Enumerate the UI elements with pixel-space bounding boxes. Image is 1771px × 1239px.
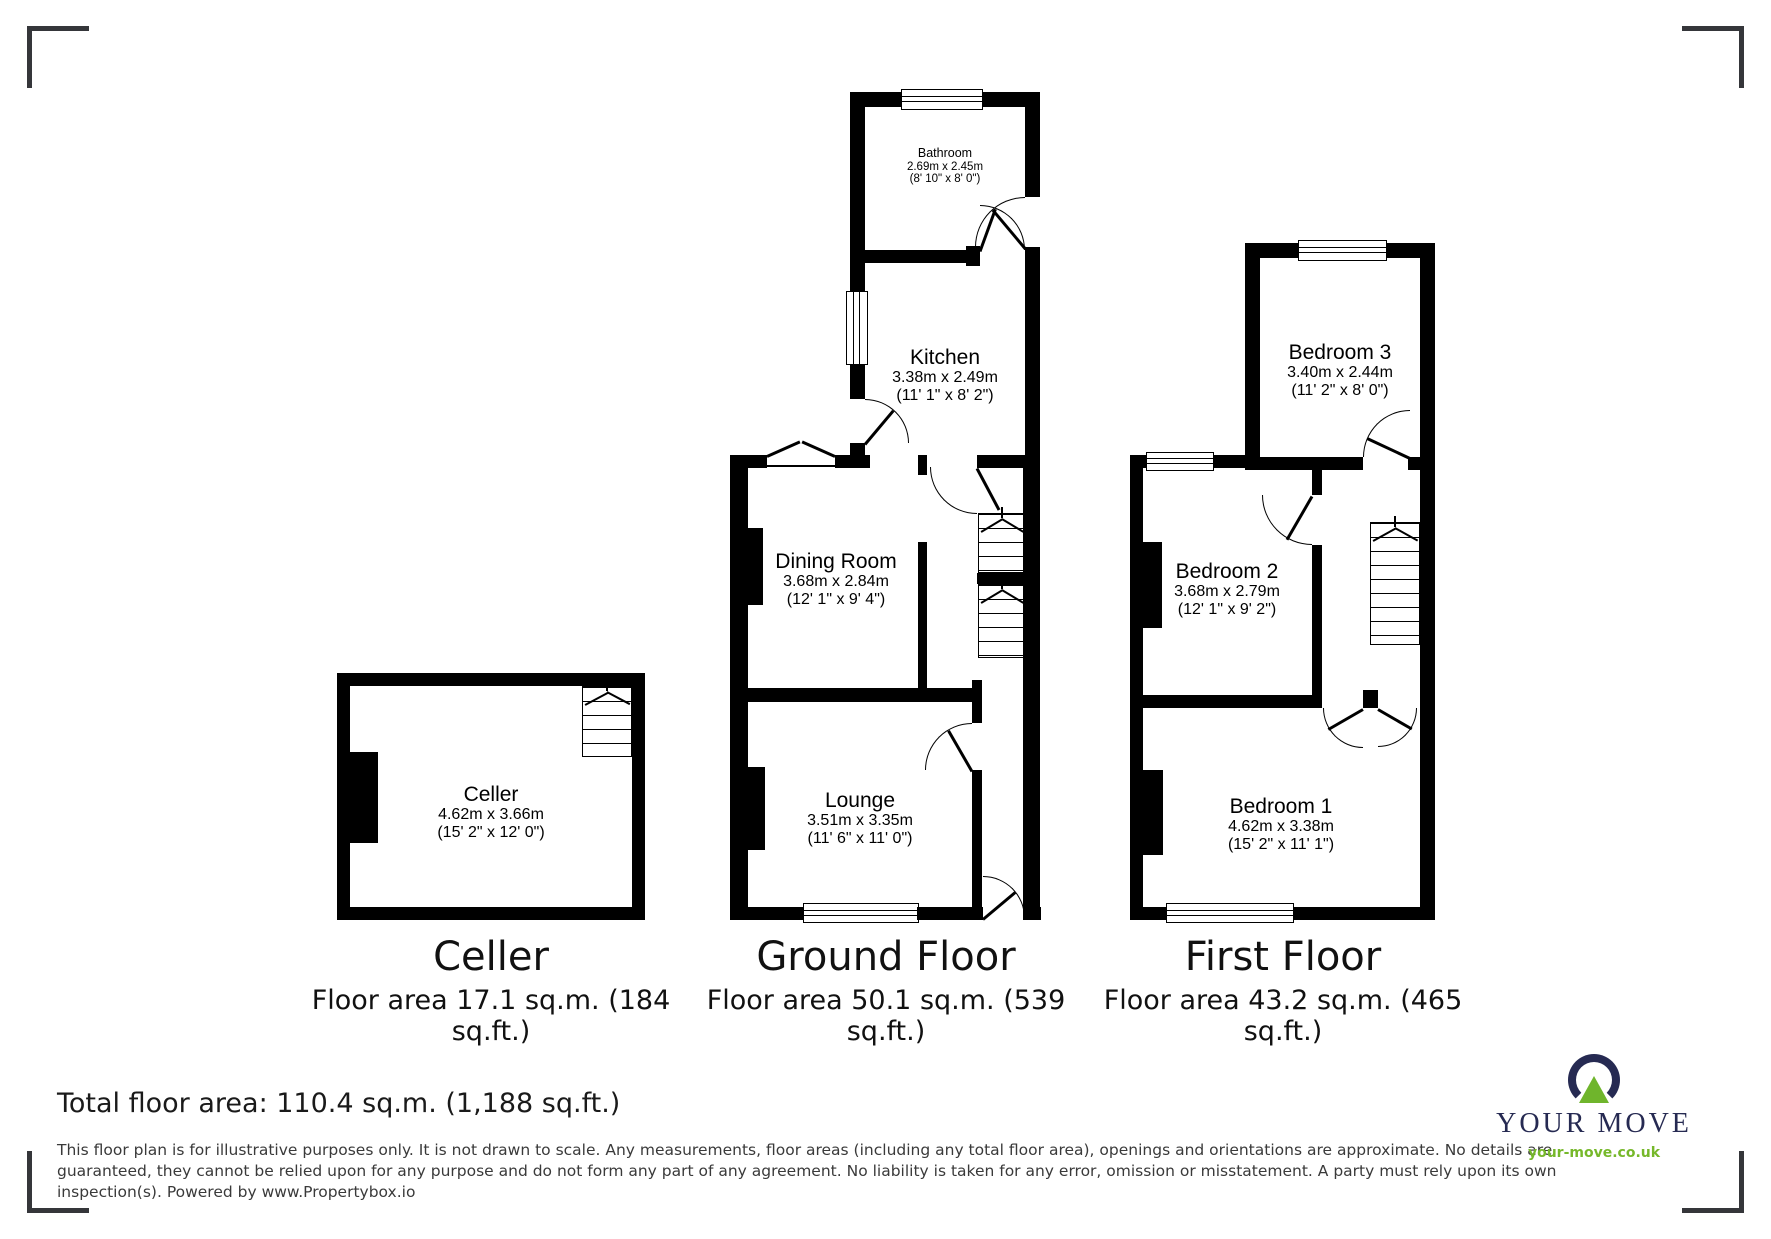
floor-label-first: First Floor Floor area 43.2 sq.m. (465 s…	[1083, 934, 1483, 1047]
bedroom1-window	[1166, 903, 1294, 923]
room-size-imperial: (12' 1" x 9' 2")	[1127, 601, 1327, 619]
wall	[337, 907, 645, 920]
logo-brand-text: YOUR MOVE	[1464, 1108, 1724, 1140]
bathroom-window	[901, 89, 983, 110]
room-size-metric: 3.68m x 2.79m	[1127, 583, 1327, 601]
wall	[972, 770, 982, 907]
room-size-metric: 3.51m x 3.35m	[760, 812, 960, 830]
room-label-lounge: Lounge 3.51m x 3.35m (11' 6" x 11' 0")	[760, 790, 960, 848]
room-label-cellar: Celler 4.62m x 3.66m (15' 2" x 12' 0")	[391, 784, 591, 842]
door-arc	[930, 467, 977, 514]
room-name: Celler	[391, 784, 591, 806]
wall	[972, 680, 982, 723]
room-label-dining: Dining Room 3.68m x 2.84m (12' 1" x 9' 4…	[736, 551, 936, 609]
corner-mark-bottom-left	[27, 1151, 32, 1213]
wall	[1408, 457, 1420, 470]
corner-mark-top-left	[27, 26, 89, 31]
corner-mark-top-left	[27, 26, 32, 88]
stairs-down-cellar	[978, 584, 1025, 658]
room-size-imperial: (8' 10" x 8' 0")	[845, 173, 1045, 185]
stairs-first-floor	[1370, 522, 1420, 645]
cellar-stairs	[582, 686, 632, 757]
floor-area-line2: sq.ft.)	[686, 1016, 1086, 1047]
room-name: Bedroom 2	[1127, 561, 1327, 583]
corner-mark-bottom-right	[1682, 1208, 1744, 1213]
wall	[850, 92, 865, 293]
french-door-leaf	[766, 440, 800, 457]
wall	[1363, 690, 1378, 708]
room-name: Kitchen	[845, 347, 1045, 369]
wall	[748, 688, 973, 702]
disclaimer-line2: guaranteed, they cannot be relied upon f…	[57, 1162, 1556, 1180]
room-size-metric: 4.62m x 3.66m	[391, 806, 591, 824]
wall	[337, 673, 350, 920]
room-name: Bedroom 3	[1240, 342, 1440, 364]
corner-mark-top-right	[1739, 26, 1744, 88]
room-size-metric: 2.69m x 2.45m	[845, 161, 1045, 173]
chimney-breast	[350, 752, 378, 843]
floorplan-page: Celler 4.62m x 3.66m (15' 2" x 12' 0")	[0, 0, 1771, 1239]
bedroom3-window	[1298, 240, 1387, 261]
room-name: Lounge	[760, 790, 960, 812]
door-arc	[1363, 410, 1410, 457]
room-size-imperial: (11' 1" x 8' 2")	[845, 387, 1045, 405]
room-label-bedroom3: Bedroom 3 3.40m x 2.44m (11' 2" x 8' 0")	[1240, 342, 1440, 400]
wall	[1130, 695, 1322, 708]
room-name: Bathroom	[845, 146, 1045, 161]
logo-url-text: your-move.co.uk	[1464, 1145, 1724, 1161]
wall	[1023, 467, 1040, 920]
corner-mark-top-right	[1682, 26, 1744, 31]
wall	[865, 250, 968, 263]
room-size-metric: 3.40m x 2.44m	[1240, 364, 1440, 382]
room-size-imperial: (12' 1" x 9' 4")	[736, 591, 936, 609]
wall	[730, 455, 748, 920]
chimney-breast	[1143, 770, 1163, 855]
corner-mark-bottom-right	[1739, 1151, 1744, 1213]
room-size-imperial: (15' 2" x 12' 0")	[391, 824, 591, 842]
room-size-metric: 3.38m x 2.49m	[845, 369, 1045, 387]
floor-area-line2: sq.ft.)	[291, 1016, 691, 1047]
room-size-metric: 3.68m x 2.84m	[736, 573, 936, 591]
logo-triangle-icon	[1579, 1076, 1609, 1103]
wall	[632, 673, 645, 920]
wall	[730, 455, 767, 468]
room-name: Dining Room	[736, 551, 936, 573]
disclaimer-line3: inspection(s). Powered by www.Propertybo…	[57, 1183, 415, 1201]
wall	[337, 673, 645, 686]
wall	[918, 455, 927, 475]
room-size-imperial: (11' 2" x 8' 0")	[1240, 382, 1440, 400]
room-label-bedroom1: Bedroom 1 4.62m x 3.38m (15' 2" x 11' 1"…	[1181, 796, 1381, 854]
wall	[1312, 467, 1322, 495]
room-size-metric: 4.62m x 3.38m	[1181, 818, 1381, 836]
floor-label-cellar: Celler Floor area 17.1 sq.m. (184 sq.ft.…	[291, 934, 691, 1047]
threshold-line	[767, 465, 835, 467]
floor-area-line1: Floor area 50.1 sq.m. (539	[686, 985, 1086, 1016]
wall	[966, 246, 980, 266]
stairs-up	[978, 513, 1025, 573]
french-door-leaf	[802, 440, 836, 457]
corner-mark-bottom-left	[27, 1208, 89, 1213]
room-label-bathroom: Bathroom 2.69m x 2.45m (8' 10" x 8' 0")	[845, 146, 1045, 185]
room-name: Bedroom 1	[1181, 796, 1381, 818]
bedroom2-window	[1146, 452, 1214, 471]
floor-area-line2: sq.ft.)	[1083, 1016, 1483, 1047]
room-size-imperial: (15' 2" x 11' 1")	[1181, 836, 1381, 854]
floor-label-ground: Ground Floor Floor area 50.1 sq.m. (539 …	[686, 934, 1086, 1047]
floor-title: First Floor	[1083, 934, 1483, 980]
floor-area-line1: Floor area 17.1 sq.m. (184	[291, 985, 691, 1016]
floor-title: Celler	[291, 934, 691, 980]
wall	[835, 455, 870, 468]
floor-title: Ground Floor	[686, 934, 1086, 980]
total-floor-area: Total floor area: 110.4 sq.m. (1,188 sq.…	[57, 1088, 620, 1119]
door-leaf	[976, 468, 1001, 511]
floor-area-line1: Floor area 43.2 sq.m. (465	[1083, 985, 1483, 1016]
room-label-kitchen: Kitchen 3.38m x 2.49m (11' 1" x 8' 2")	[845, 347, 1045, 405]
wall	[730, 907, 805, 920]
disclaimer-line1: This floor plan is for illustrative purp…	[57, 1141, 1552, 1159]
lounge-window	[803, 903, 919, 923]
wall	[917, 907, 983, 920]
room-label-bedroom2: Bedroom 2 3.68m x 2.79m (12' 1" x 9' 2")	[1127, 561, 1327, 619]
wall	[1130, 455, 1143, 920]
room-size-imperial: (11' 6" x 11' 0")	[760, 830, 960, 848]
